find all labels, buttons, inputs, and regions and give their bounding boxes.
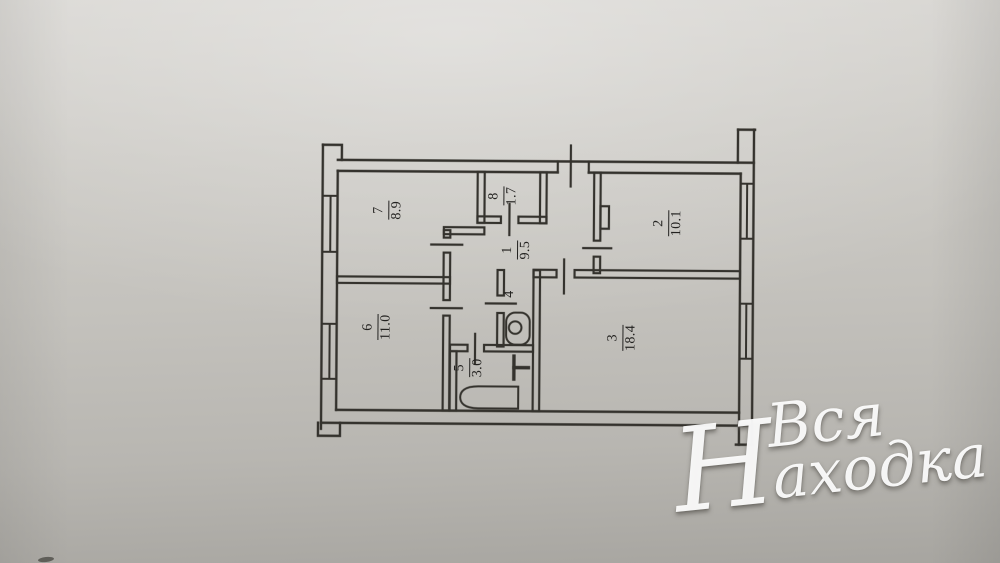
scan-speck — [38, 556, 54, 563]
toilet-icon — [506, 313, 530, 345]
room-8-label: 8 1.7 — [487, 187, 520, 206]
room-1-label: 1 9.5 — [501, 241, 534, 260]
exterior-walls — [318, 127, 755, 445]
room-3-label: 3 18.4 — [606, 325, 639, 351]
room-6-label: 6 11.0 — [361, 314, 394, 340]
washbasin-icon — [514, 356, 529, 379]
bathtub-icon — [460, 386, 518, 408]
room-7-label: 7 8.9 — [372, 201, 405, 220]
scanned-floor-plan-photo: 7 8.9 8 1.7 2 10.1 1 9.5 4 6 11.0 3 18.4… — [0, 0, 1000, 563]
room-4-label: 4 — [503, 290, 519, 298]
floor-plan: 7 8.9 8 1.7 2 10.1 1 9.5 4 6 11.0 3 18.4… — [0, 0, 1000, 563]
floor-plan-drawing — [0, 0, 1000, 563]
room-2-label: 2 10.1 — [652, 210, 685, 236]
room-5-label: 5 3.0 — [453, 358, 486, 377]
